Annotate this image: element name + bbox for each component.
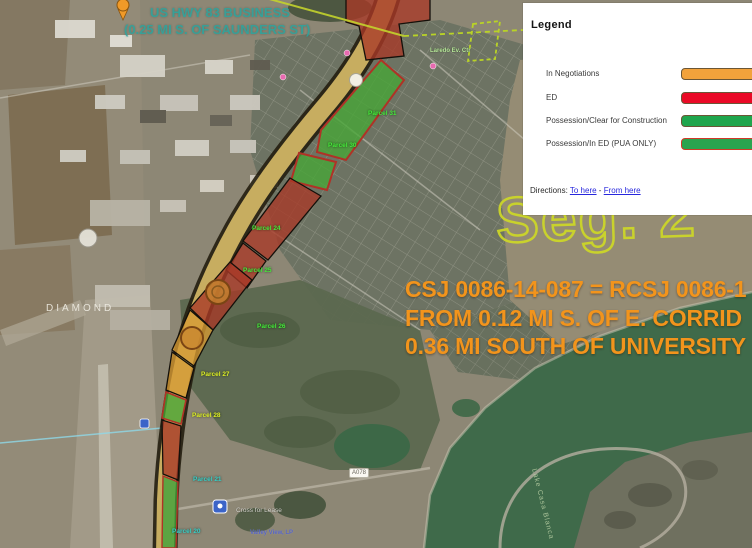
poi-dot — [280, 74, 286, 80]
legend-swatch-ed — [681, 92, 752, 104]
map-viewport[interactable]: US HWY 83 BUSINESS (0.25 MI S. OF SAUNDE… — [0, 0, 752, 548]
directions-row: Directions: To here - From here — [530, 186, 641, 195]
parcel-seal-icon — [206, 280, 230, 304]
highway-shield-icon — [140, 419, 149, 428]
project-limit-label-teal: US HWY 83 BUSINESS (0.25 MI S. OF SAUNDE… — [124, 4, 310, 38]
to-here-link[interactable]: To here — [570, 186, 597, 195]
legend-panel: Legend In Negotiations ED Possession/Cle… — [523, 3, 752, 215]
legend-item: In Negotiations — [523, 68, 752, 81]
route-shield-icon — [350, 74, 363, 87]
legend-item-label: Possession/Clear for Construction — [546, 116, 667, 125]
csj-project-text: CSJ 0086-14-087 = RCSJ 0086-1 FROM 0.12 … — [405, 275, 746, 361]
legend-swatch-possession-clear — [681, 115, 752, 127]
csj-line-3: 0.36 MI SOUTH OF UNIVERSITY — [405, 332, 746, 361]
poi-dot — [344, 50, 350, 56]
legend-item-label: ED — [546, 93, 557, 102]
directions-label: Directions: — [530, 186, 568, 195]
poi-dot — [430, 63, 436, 69]
legend-item-label: In Negotiations — [546, 69, 599, 78]
legend-item: ED — [523, 92, 752, 105]
legend-item: Possession/Clear for Construction — [523, 115, 752, 128]
legend-swatch-in-negotiations — [681, 68, 752, 80]
from-here-link[interactable]: From here — [604, 186, 641, 195]
teal-line-1: US HWY 83 BUSINESS — [150, 4, 310, 21]
parcel-ed[interactable] — [162, 420, 181, 480]
shield-glyph — [218, 504, 223, 509]
legend-item: Possession/In ED (PUA ONLY) — [523, 138, 752, 151]
directions-separator: - — [599, 186, 602, 195]
legend-swatch-possession-in-ed — [681, 138, 752, 150]
csj-line-2: FROM 0.12 MI S. OF E. CORRID — [405, 304, 746, 333]
parcel-seal-icon — [181, 327, 203, 349]
teal-line-2: (0.25 MI S. OF SAUNDERS ST) — [124, 21, 310, 38]
parcel-possession[interactable] — [162, 476, 178, 548]
legend-item-label: Possession/In ED (PUA ONLY) — [546, 139, 656, 148]
csj-line-1: CSJ 0086-14-087 = RCSJ 0086-1 — [405, 275, 746, 304]
legend-title: Legend — [531, 19, 572, 31]
